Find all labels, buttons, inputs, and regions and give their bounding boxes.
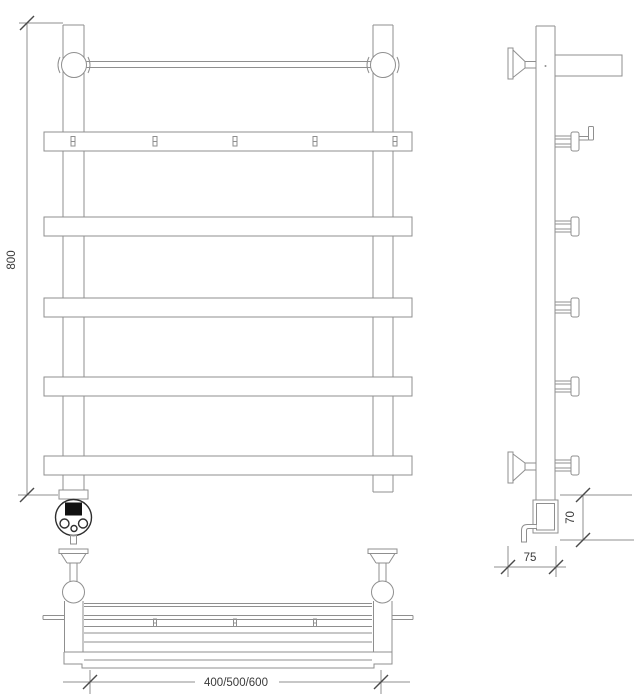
side-view: 70 75 — [494, 26, 634, 577]
left-post — [63, 25, 84, 490]
ball-joint-top-view — [63, 581, 85, 603]
element-collar — [59, 490, 88, 499]
bottom-right-bracket — [368, 549, 397, 652]
wall-flange — [59, 549, 88, 554]
side-hook — [589, 127, 594, 141]
height-dimension — [18, 16, 63, 502]
shelf-top-view — [43, 604, 413, 669]
towel-bar-1 — [44, 132, 412, 151]
wall-flange-side — [508, 48, 513, 79]
center-mark — [545, 65, 547, 67]
bottom-view: 400/500/600 — [43, 549, 413, 694]
towel-bar-5 — [44, 456, 412, 475]
towel-rail-technical-drawing: 800 — [0, 0, 638, 700]
towel-bars — [44, 132, 412, 475]
bottom-left-bracket — [59, 549, 88, 652]
depth-label: 75 — [524, 552, 537, 564]
depth-dimension: 75 — [494, 546, 566, 577]
element-display — [65, 503, 82, 516]
heater-box-side — [522, 500, 559, 542]
side-bar-profile — [571, 217, 579, 236]
top-rail — [58, 53, 399, 78]
front-view: 800 — [6, 16, 412, 544]
left-ball-joint — [62, 53, 87, 78]
towel-bar-2 — [44, 217, 412, 236]
wall-flange-side — [508, 452, 513, 483]
side-bar-profile — [571, 456, 579, 475]
side-top-bracket — [508, 48, 536, 79]
heating-element — [56, 490, 92, 544]
side-top-arm — [545, 55, 623, 76]
side-bar-profile — [571, 298, 579, 317]
wall-flange — [368, 549, 397, 554]
height-label: 800 — [6, 250, 18, 269]
drawing-svg: 800 — [0, 0, 638, 700]
element-stub — [71, 536, 77, 545]
right-post — [373, 25, 393, 492]
heater-height-label: 70 — [565, 511, 577, 524]
heater-height-dimension: 70 — [560, 488, 634, 547]
side-post — [536, 26, 555, 500]
ball-joint-top-view — [372, 581, 394, 603]
side-bar-profile — [571, 132, 579, 151]
side-bars — [555, 127, 594, 476]
side-bottom-bracket — [508, 452, 536, 483]
side-bar-profile — [571, 377, 579, 396]
right-ball-joint — [371, 53, 396, 78]
towel-bar-4 — [44, 377, 412, 396]
towel-bar-3 — [44, 298, 412, 317]
width-label: 400/500/600 — [204, 677, 268, 689]
width-dimension: 400/500/600 — [63, 670, 410, 694]
